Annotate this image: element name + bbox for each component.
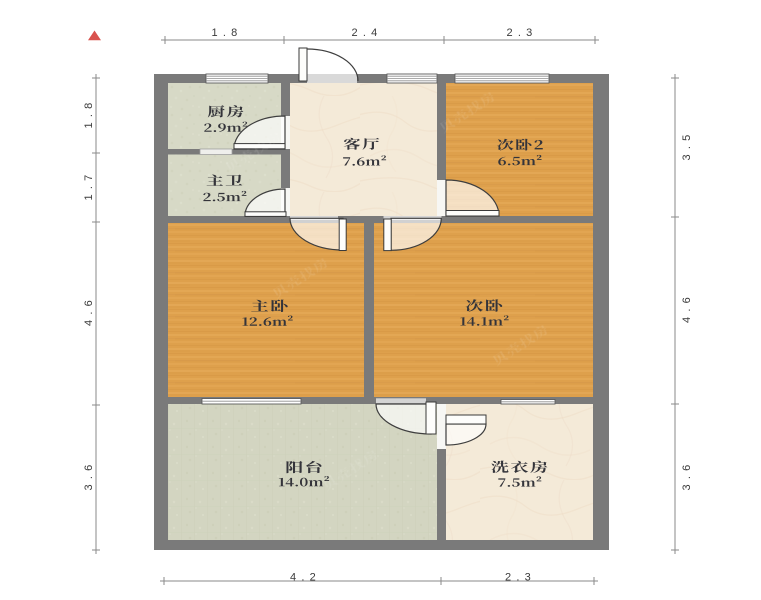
- svg-text:4.2: 4.2: [290, 572, 321, 584]
- svg-text:2.4: 2.4: [352, 27, 383, 39]
- svg-text:3.6: 3.6: [83, 460, 95, 491]
- svg-text:2.3: 2.3: [505, 572, 536, 584]
- svg-text:4.6: 4.6: [83, 295, 95, 326]
- svg-text:3.6: 3.6: [681, 460, 693, 491]
- svg-text:2.3: 2.3: [507, 27, 538, 39]
- svg-text:4.6: 4.6: [681, 292, 693, 323]
- svg-text:1.7: 1.7: [83, 170, 95, 201]
- svg-text:3.5: 3.5: [681, 130, 693, 161]
- svg-text:1.8: 1.8: [212, 27, 243, 39]
- svg-text:1.8: 1.8: [83, 98, 95, 129]
